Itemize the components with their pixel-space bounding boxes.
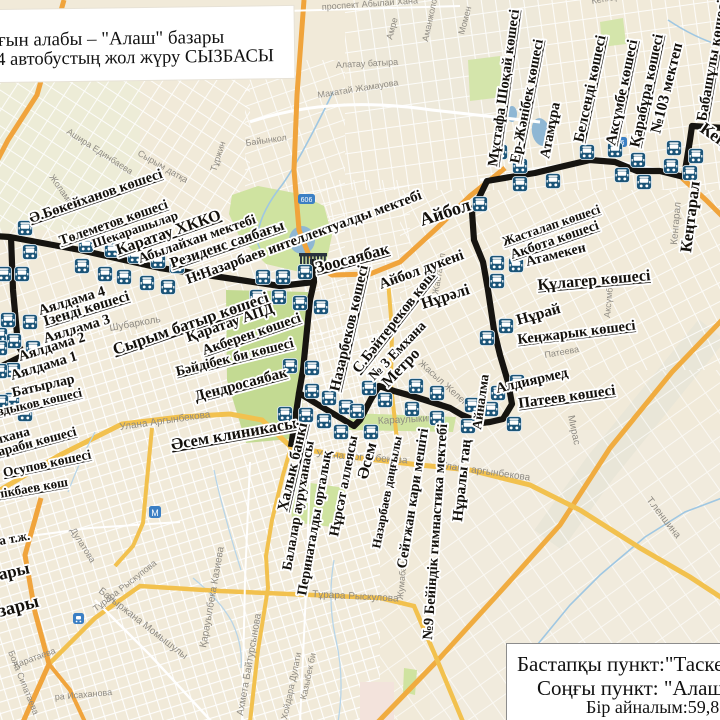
svg-text:606: 606 bbox=[301, 197, 313, 204]
svg-text:M: M bbox=[151, 508, 159, 518]
